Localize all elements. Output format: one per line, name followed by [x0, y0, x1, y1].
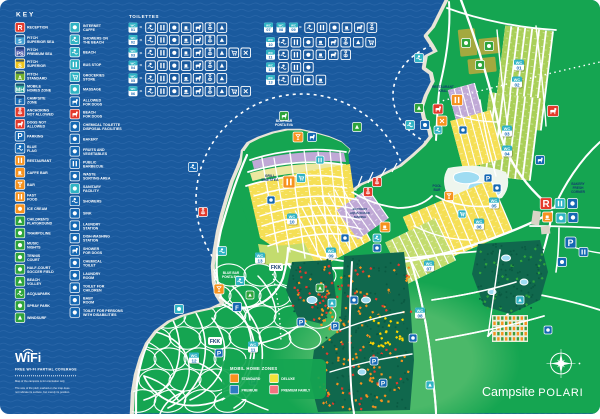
svg-text:03: 03	[131, 53, 135, 57]
svg-text:BAR: BAR	[27, 183, 35, 187]
svg-text:CHILDREN: CHILDREN	[83, 288, 102, 292]
svg-text:11: 11	[268, 55, 272, 59]
svg-text:WC: WC	[250, 342, 257, 347]
svg-text:FOR DOGS: FOR DOGS	[83, 251, 103, 255]
svg-text:01: 01	[131, 28, 135, 32]
svg-text:=: =	[140, 89, 143, 94]
svg-text:ICE CREAM: ICE CREAM	[27, 207, 47, 211]
svg-text:PREMIUM: PREMIUM	[242, 388, 258, 392]
svg-text:MH: MH	[16, 88, 25, 94]
svg-text:01: 01	[516, 65, 522, 70]
svg-text:WC: WC	[131, 87, 137, 91]
svg-text:06: 06	[131, 92, 135, 96]
svg-text:P: P	[299, 320, 304, 327]
svg-text:MASSAGE: MASSAGE	[83, 88, 102, 92]
svg-text:WC: WC	[257, 253, 264, 258]
svg-text:Map of the campsite is for ori: Map of the campsite is for orientation o…	[15, 379, 65, 383]
svg-text:STATION: STATION	[83, 226, 99, 230]
svg-text:MOBIL HOME ZONES: MOBIL HOME ZONES	[230, 366, 278, 371]
svg-text:=: =	[140, 25, 143, 30]
svg-text:HOMES ZONE: HOMES ZONE	[27, 88, 52, 92]
svg-text:05: 05	[491, 203, 497, 208]
svg-text:CORNER: CORNER	[571, 190, 586, 194]
svg-text:03: 03	[504, 131, 510, 136]
svg-text:SINK: SINK	[83, 212, 92, 216]
svg-text:WC: WC	[514, 77, 521, 82]
svg-text:WC: WC	[266, 24, 272, 28]
svg-text:SOCCER FIELD: SOCCER FIELD	[27, 270, 54, 274]
svg-text:FOR DOGS: FOR DOGS	[83, 102, 103, 106]
svg-text:SUPERIOR: SUPERIOR	[27, 64, 46, 68]
svg-text:10: 10	[289, 219, 295, 224]
svg-text:12: 12	[191, 358, 197, 363]
svg-text:08: 08	[417, 313, 423, 318]
svg-text:WiFi: WiFi	[15, 351, 41, 365]
svg-text:BAKERY: BAKERY	[83, 137, 99, 141]
svg-text:WC: WC	[328, 248, 335, 253]
svg-text:WC: WC	[476, 219, 483, 224]
svg-text:PS: PS	[16, 51, 24, 57]
svg-text:Campsite POLARI: Campsite POLARI	[482, 385, 583, 399]
svg-text:STANDARD: STANDARD	[242, 377, 261, 381]
svg-text:05: 05	[131, 79, 135, 83]
svg-text:FKK: FKK	[271, 265, 282, 271]
svg-text:FOR DOGS: FOR DOGS	[83, 115, 103, 119]
svg-text:WC: WC	[426, 261, 433, 266]
svg-text:13: 13	[257, 258, 263, 263]
svg-text:TRAMPOLINE: TRAMPOLINE	[27, 231, 51, 235]
svg-text:SORTING AREA: SORTING AREA	[83, 177, 111, 181]
svg-text:COURT: COURT	[27, 258, 41, 262]
svg-text:TOILET: TOILET	[83, 264, 97, 268]
svg-text:ROOM: ROOM	[83, 276, 94, 280]
svg-text:09: 09	[291, 28, 295, 32]
svg-text:WC: WC	[268, 38, 274, 42]
svg-text:THE BEACH: THE BEACH	[83, 40, 104, 44]
svg-text:P: P	[217, 351, 222, 358]
svg-text:P: P	[486, 176, 491, 183]
svg-text:not indicate its surface, but: not indicate its surface, but merely its…	[15, 390, 70, 394]
svg-text:The size of the pitch marked o: The size of the pitch marked on the map …	[15, 386, 70, 390]
svg-text:09: 09	[328, 253, 334, 258]
svg-text:WC: WC	[491, 198, 498, 203]
svg-text:BAR: BAR	[434, 188, 442, 192]
svg-text:07: 07	[426, 266, 432, 271]
svg-text:RECEPTION: RECEPTION	[27, 26, 48, 30]
svg-text:PARKING: PARKING	[27, 135, 44, 139]
svg-text:R: R	[542, 199, 549, 210]
svg-text:R: R	[17, 25, 22, 32]
svg-text:NOT ALLOWED: NOT ALLOWED	[27, 113, 54, 117]
svg-text:FKK: FKK	[210, 339, 221, 345]
svg-text:P: P	[568, 238, 574, 248]
svg-text:CAFFE: CAFFE	[83, 28, 96, 32]
svg-text:PLAYGROUND: PLAYGROUND	[27, 222, 53, 226]
svg-text:DELUXE: DELUXE	[281, 377, 295, 381]
svg-text:PONTA EVA: PONTA EVA	[275, 123, 294, 127]
svg-text:11: 11	[251, 347, 256, 352]
svg-text:WC: WC	[131, 74, 137, 78]
svg-text:DISPOSAL FACILITIES: DISPOSAL FACILITIES	[83, 127, 122, 131]
svg-text:02: 02	[514, 82, 520, 87]
svg-text:13: 13	[268, 81, 272, 85]
svg-text:NIGHTS: NIGHTS	[27, 246, 41, 250]
svg-text:WC: WC	[131, 62, 137, 66]
svg-text:WC: WC	[131, 49, 137, 53]
svg-text:FOOD: FOOD	[27, 197, 38, 201]
svg-text:WC: WC	[268, 76, 274, 80]
svg-text:WC: WC	[191, 353, 198, 358]
svg-text:PREMIUM SEA: PREMIUM SEA	[27, 52, 53, 56]
svg-text:VOLLEY: VOLLEY	[27, 282, 42, 286]
svg-text:WC: WC	[289, 214, 296, 219]
svg-text:F: F	[235, 306, 239, 312]
svg-text:WC: WC	[268, 51, 274, 55]
svg-text:TOILETTES: TOILETTES	[129, 14, 159, 19]
svg-text:P: P	[17, 132, 22, 141]
svg-text:07: 07	[266, 28, 270, 32]
svg-text:FREE WI-FI PARTIAL COVERAGE: FREE WI-FI PARTIAL COVERAGE	[15, 368, 77, 372]
svg-text:P: P	[381, 381, 386, 388]
svg-text:WC: WC	[279, 24, 285, 28]
svg-text:WC: WC	[131, 36, 137, 40]
svg-text:BARBECUE: BARBECUE	[83, 164, 104, 168]
svg-text:WINDSURF: WINDSURF	[27, 316, 47, 320]
svg-text:WC: WC	[504, 126, 511, 131]
svg-text:MARINA: MARINA	[354, 215, 367, 219]
svg-text:ZONE: ZONE	[27, 101, 38, 105]
svg-text:10: 10	[268, 43, 272, 47]
svg-text:WC: WC	[268, 63, 274, 67]
svg-text:FLAG: FLAG	[27, 149, 37, 153]
svg-text:FACILITY: FACILITY	[83, 189, 100, 193]
svg-text:SPRAY PARK: SPRAY PARK	[27, 304, 50, 308]
svg-text:VEGETABLES: VEGETABLES	[83, 152, 108, 156]
svg-text:A: A	[18, 76, 22, 82]
svg-text:=: =	[140, 38, 143, 43]
svg-text:ALLOWED: ALLOWED	[27, 125, 46, 129]
svg-text:=: =	[299, 25, 302, 30]
svg-text:KRAL: KRAL	[439, 89, 448, 93]
svg-text:RESTAURANT: RESTAURANT	[27, 159, 52, 163]
svg-text:WC: WC	[417, 308, 424, 313]
svg-text:CAFFE BAR: CAFFE BAR	[27, 171, 48, 175]
svg-text:STATION: STATION	[83, 239, 99, 243]
svg-text:WC: WC	[131, 24, 137, 28]
svg-text:P: P	[372, 359, 377, 366]
svg-text:ACQUAPARK: ACQUAPARK	[27, 292, 50, 296]
svg-text:WC: WC	[516, 60, 523, 65]
svg-text:02: 02	[131, 41, 135, 45]
svg-text:STANDARD: STANDARD	[27, 76, 47, 80]
svg-text:STORE: STORE	[83, 78, 96, 82]
svg-text:WITH DISABILITIES: WITH DISABILITIES	[83, 313, 117, 317]
svg-text:S: S	[18, 39, 22, 45]
svg-text:P: P	[333, 324, 338, 331]
svg-text:BUS STOP: BUS STOP	[83, 63, 102, 67]
svg-text:KEY: KEY	[16, 12, 35, 19]
svg-text:SUPERIOR SEA: SUPERIOR SEA	[27, 40, 55, 44]
svg-text:S: S	[18, 63, 22, 69]
svg-text:BIMI STEA: BIMI STEA	[261, 178, 279, 182]
svg-text:WC: WC	[291, 24, 297, 28]
svg-text:BEACH: BEACH	[83, 51, 96, 55]
svg-text:=: =	[140, 50, 143, 55]
svg-text:08: 08	[279, 28, 283, 32]
svg-text:=: =	[140, 76, 143, 81]
svg-text:WC: WC	[504, 146, 511, 151]
svg-text:06: 06	[476, 224, 482, 229]
svg-text:04: 04	[504, 151, 510, 156]
svg-text:PREMIUM FAMILY: PREMIUM FAMILY	[281, 388, 311, 392]
svg-text:12: 12	[268, 68, 272, 72]
svg-text:=: =	[140, 63, 143, 68]
svg-text:ROOM: ROOM	[83, 301, 94, 305]
svg-text:SHOWERS: SHOWERS	[83, 199, 102, 203]
